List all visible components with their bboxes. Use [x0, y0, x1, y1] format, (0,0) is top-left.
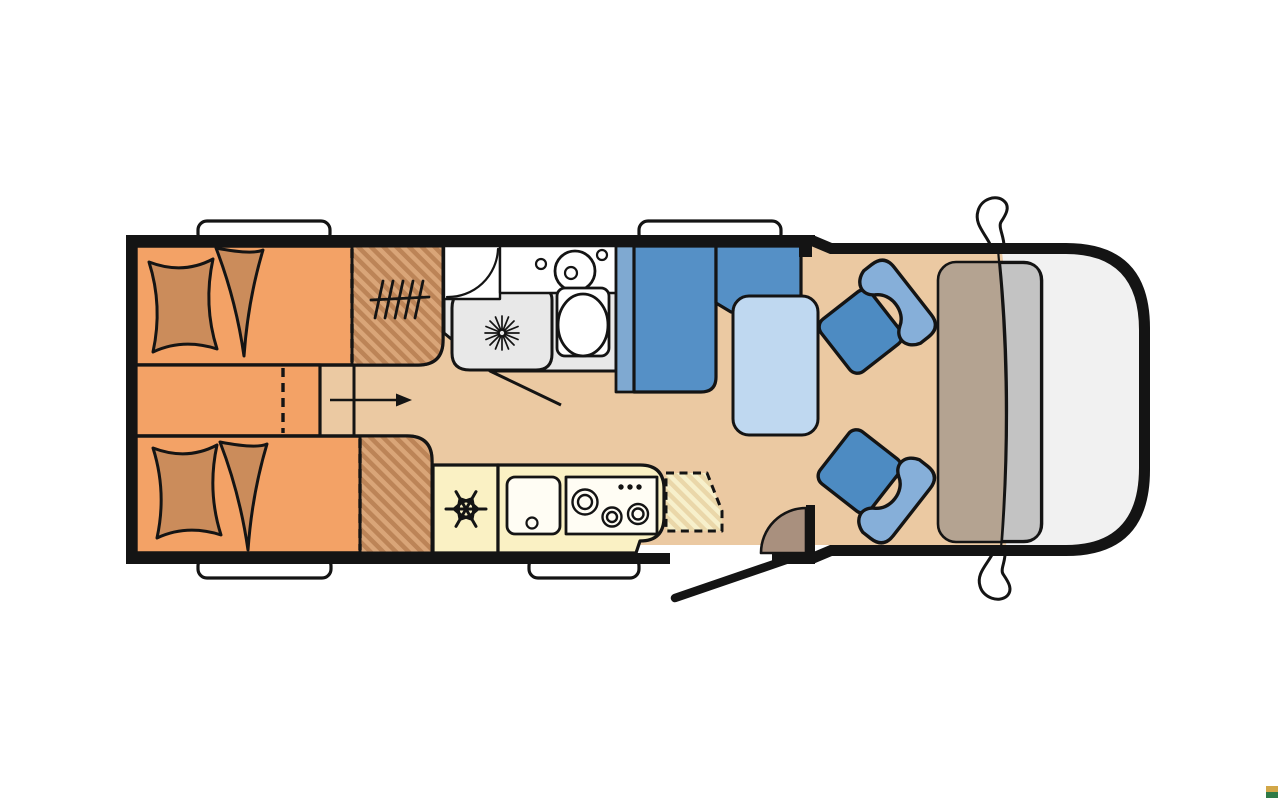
- floorplan-canvas: [0, 0, 1280, 800]
- washbasin: [555, 251, 595, 291]
- mirror-icon-top: [977, 198, 1007, 246]
- floorplan-page: [0, 0, 1280, 800]
- wardrobe-bottom: [360, 436, 432, 553]
- rear-bed-area: [136, 246, 443, 553]
- corner-marker-green: [1266, 792, 1278, 798]
- wall-top-living: [126, 235, 815, 246]
- wall-rear: [126, 235, 136, 564]
- wall-stub-door: [806, 505, 815, 562]
- kitchen-sink: [507, 477, 560, 534]
- tap-knob-left: [536, 259, 546, 269]
- wall-bottom-cab: [811, 545, 1066, 564]
- bed-middle-section: [136, 365, 320, 436]
- entry-door-swing: [675, 560, 786, 598]
- shower-drain-icon: [485, 316, 519, 350]
- cab-area: [938, 250, 1139, 549]
- cooktop-control-dots: [618, 484, 641, 489]
- bench-backrest-strip: [616, 246, 634, 392]
- pillow-top: [149, 259, 217, 352]
- tap-knob-right: [597, 250, 607, 260]
- wall-stub-dinette: [799, 246, 812, 257]
- toilet-bowl: [558, 294, 608, 356]
- wall-bottom-living: [126, 553, 670, 564]
- dinette-bench-main: [634, 246, 716, 392]
- corner-marker-gold: [1266, 786, 1278, 792]
- pillow-bottom: [153, 445, 221, 538]
- dinette-table: [733, 296, 818, 435]
- wall-top-cab: [811, 235, 1066, 254]
- mirror-icon-bottom: [979, 551, 1010, 599]
- corner-marker: [1266, 786, 1278, 798]
